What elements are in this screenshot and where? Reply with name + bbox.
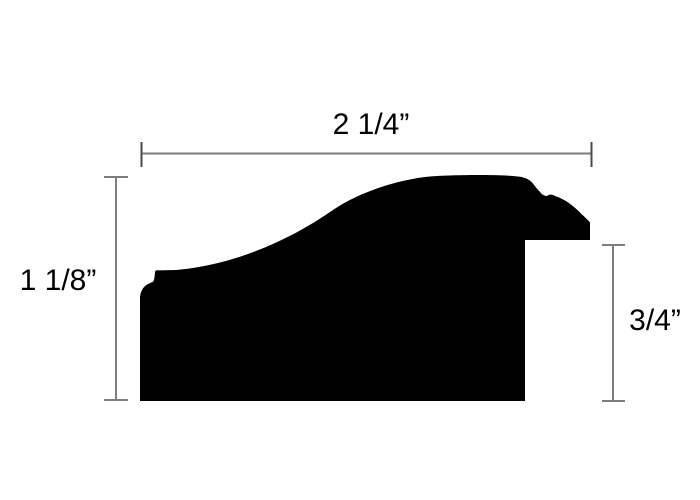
diagram-canvas: 2 1/4” 1 1/8” 3/4” bbox=[0, 0, 700, 500]
height-dimension: 1 1/8” bbox=[20, 177, 128, 400]
rabbet-dimension-label: 3/4” bbox=[629, 304, 681, 337]
rabbet-dimension: 3/4” bbox=[602, 245, 681, 401]
moulding-cross-section-diagram: 2 1/4” 1 1/8” 3/4” bbox=[0, 0, 700, 500]
width-dimension-label: 2 1/4” bbox=[333, 108, 410, 141]
width-dimension: 2 1/4” bbox=[142, 108, 592, 167]
moulding-profile-silhouette bbox=[140, 175, 590, 401]
height-dimension-label: 1 1/8” bbox=[20, 264, 97, 297]
